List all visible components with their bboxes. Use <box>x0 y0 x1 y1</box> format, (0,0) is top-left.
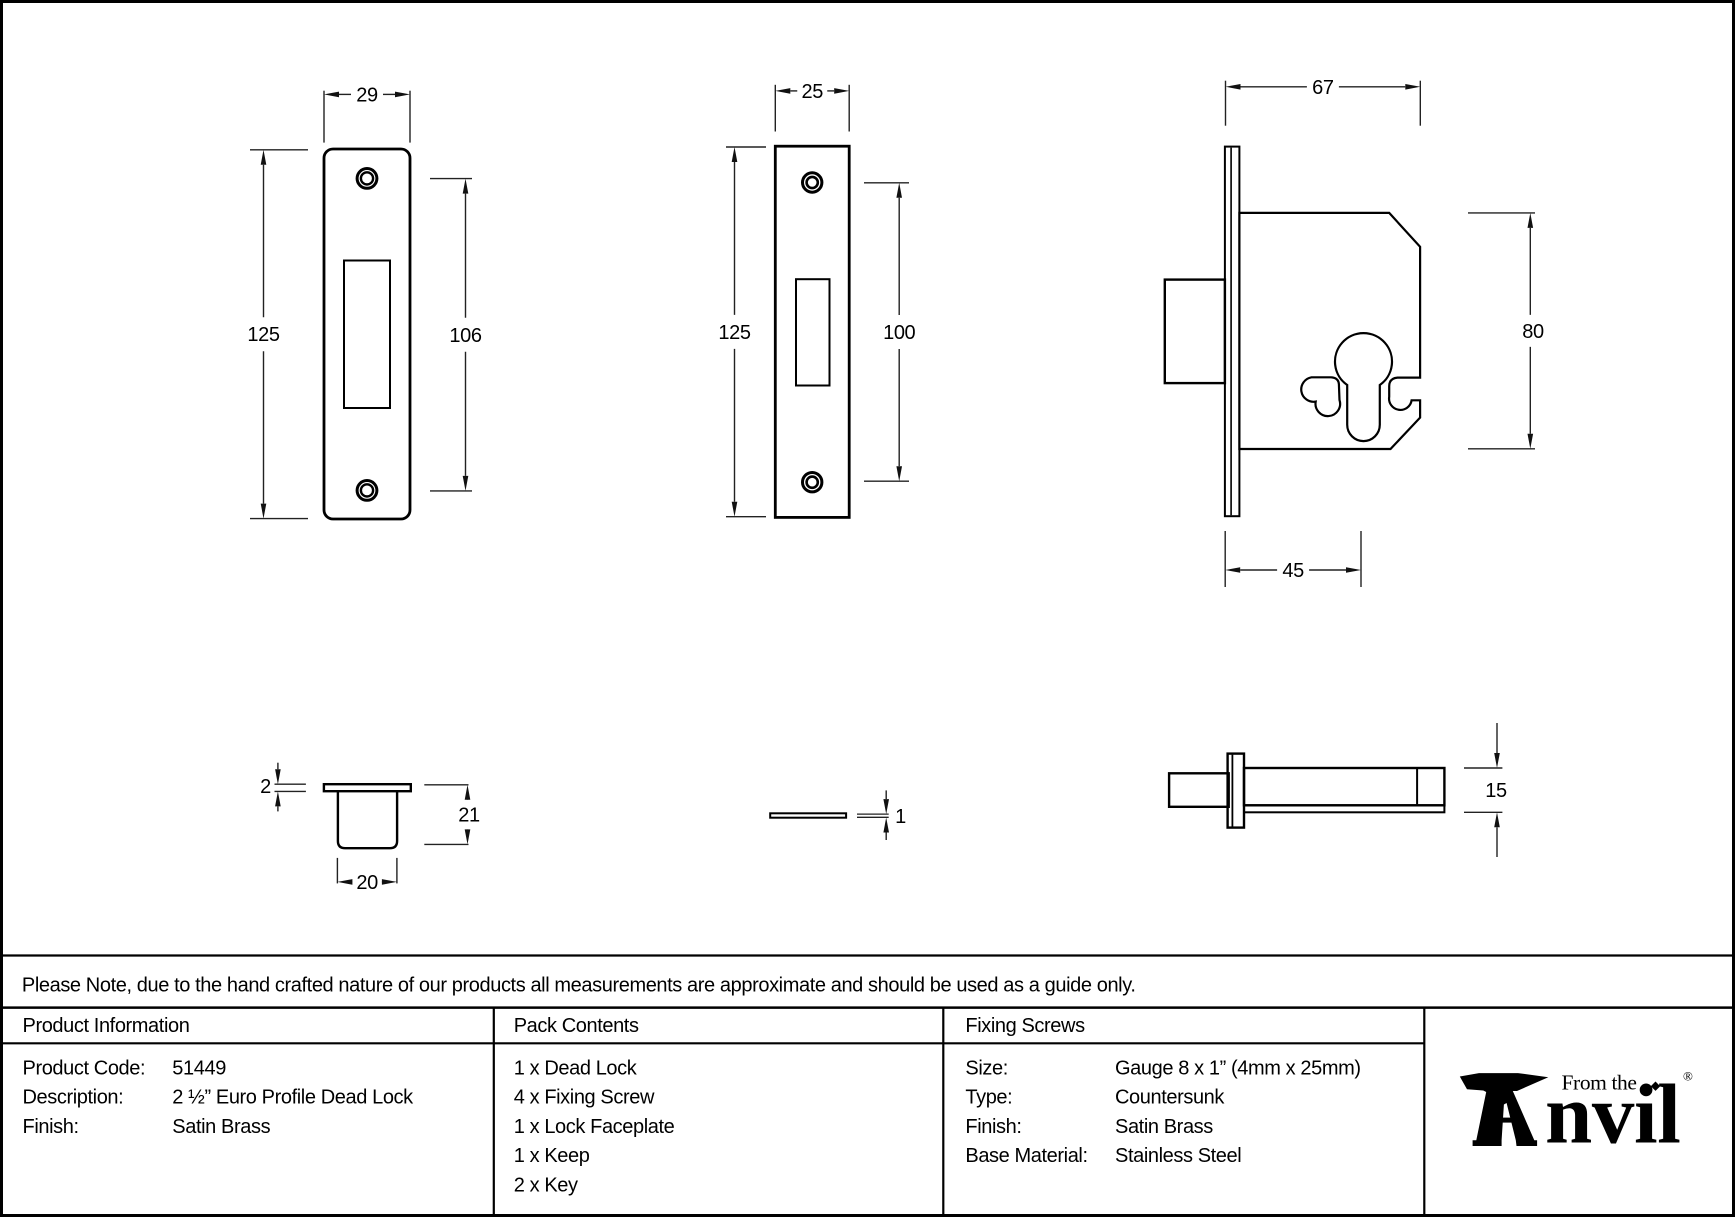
svg-text:67: 67 <box>1312 77 1334 99</box>
svg-text:Satin Brass: Satin Brass <box>172 1116 270 1138</box>
svg-text:80: 80 <box>1522 321 1544 343</box>
svg-text:Base Material:: Base Material: <box>965 1145 1087 1167</box>
svg-text:15: 15 <box>1485 780 1507 802</box>
svg-text:Product Information: Product Information <box>23 1015 190 1037</box>
svg-text:Finish:: Finish: <box>965 1116 1021 1138</box>
svg-text:45: 45 <box>1282 560 1304 582</box>
svg-text:Size:: Size: <box>965 1057 1007 1079</box>
svg-text:25: 25 <box>802 81 824 103</box>
svg-text:1 x Dead Lock: 1 x Dead Lock <box>514 1057 638 1079</box>
svg-text:1 x Keep: 1 x Keep <box>514 1145 590 1167</box>
svg-text:2: 2 <box>260 776 271 798</box>
svg-text:125: 125 <box>247 324 279 346</box>
svg-text:Stainless Steel: Stainless Steel <box>1115 1145 1241 1167</box>
svg-text:1: 1 <box>895 806 906 828</box>
svg-text:125: 125 <box>718 322 750 344</box>
svg-text:4 x Fixing Screw: 4 x Fixing Screw <box>514 1087 655 1109</box>
svg-text:Gauge 8 x 1” (4mm x 25mm): Gauge 8 x 1” (4mm x 25mm) <box>1115 1057 1361 1079</box>
svg-text:®: ® <box>1683 1069 1693 1084</box>
svg-text:Please Note, due to the hand c: Please Note, due to the hand crafted nat… <box>22 974 1136 996</box>
svg-text:Satin Brass: Satin Brass <box>1115 1116 1213 1138</box>
svg-text:20: 20 <box>356 872 378 894</box>
svg-text:106: 106 <box>449 325 481 347</box>
svg-text:100: 100 <box>883 322 915 344</box>
svg-text:Finish:: Finish: <box>23 1116 79 1138</box>
svg-text:Type:: Type: <box>965 1087 1012 1109</box>
svg-text:nvil: nvil <box>1545 1068 1680 1162</box>
svg-text:Fixing Screws: Fixing Screws <box>965 1015 1085 1037</box>
svg-text:51449: 51449 <box>172 1057 226 1079</box>
svg-text:Pack Contents: Pack Contents <box>514 1015 639 1037</box>
svg-text:1 x Lock Faceplate: 1 x Lock Faceplate <box>514 1116 675 1138</box>
svg-text:Description:: Description: <box>23 1087 124 1109</box>
svg-text:29: 29 <box>356 84 378 106</box>
svg-text:2 ½” Euro Profile Dead Lock: 2 ½” Euro Profile Dead Lock <box>172 1087 414 1109</box>
svg-text:21: 21 <box>458 805 480 827</box>
svg-text:Countersunk: Countersunk <box>1115 1087 1225 1109</box>
svg-text:2 x Key: 2 x Key <box>514 1175 578 1197</box>
svg-text:Product Code:: Product Code: <box>23 1057 146 1079</box>
